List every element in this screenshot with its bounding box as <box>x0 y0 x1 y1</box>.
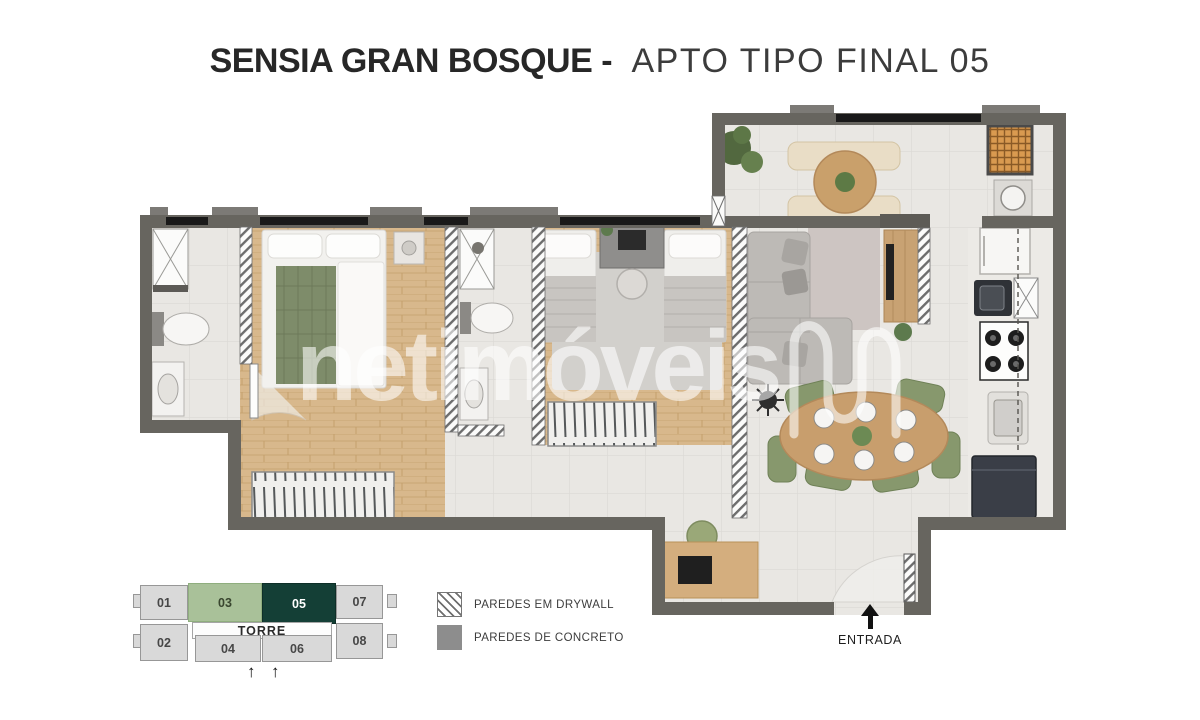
plate <box>896 410 916 430</box>
legend-item-concrete: PAREDES DE CONCRETO <box>437 625 624 650</box>
pillow <box>326 234 380 258</box>
living-rug <box>808 228 880 330</box>
sofa-pillow <box>781 238 809 266</box>
lamp <box>402 241 416 255</box>
monitor <box>618 230 646 250</box>
keyplan-unit-02: 02 <box>140 624 188 661</box>
master-wardrobe <box>252 472 394 518</box>
keyplan-unit-03: 03 <box>188 583 262 622</box>
plate <box>856 402 876 422</box>
toilet1 <box>163 313 209 345</box>
keyplan-unit-01: 01 <box>140 585 188 620</box>
master-door <box>250 364 258 418</box>
entrance-marker: ENTRADA <box>830 604 910 647</box>
tower-key-plan: 01 03 05 07 TORRE 02 04 06 08 ↑ ↑ <box>137 578 397 682</box>
laptop <box>678 556 712 584</box>
keyplan-unit-08: 08 <box>336 623 383 659</box>
legend: PAREDES EM DRYWALL PAREDES DE CONCRETO <box>437 592 624 658</box>
bbq-grill <box>988 126 1032 174</box>
terrace-sink <box>1001 186 1025 210</box>
plant <box>894 323 912 341</box>
desk-chair <box>617 269 647 299</box>
plate <box>894 442 914 462</box>
keyplan-arrow-icon: ↑ <box>271 662 280 682</box>
table-plant <box>835 172 855 192</box>
concrete-solid-swatch-icon <box>437 625 462 650</box>
legend-label: PAREDES DE CONCRETO <box>474 632 624 644</box>
keyplan-unit-07: 07 <box>336 585 383 619</box>
legend-item-drywall: PAREDES EM DRYWALL <box>437 592 624 617</box>
unit-label: 08 <box>353 634 367 648</box>
sofa-pillow <box>781 268 809 296</box>
plate <box>854 450 874 470</box>
keyplan-notch <box>387 594 397 608</box>
washing-machine <box>972 456 1036 518</box>
keyplan-notch <box>387 634 397 648</box>
toilet1-tank <box>152 312 164 346</box>
unit-label: 05 <box>292 597 306 611</box>
floorplan-page: SENSIA GRAN BOSQUE - APTO TIPO FINAL 05 <box>0 0 1200 720</box>
arrow-stem <box>868 614 873 629</box>
drywall-hatch-swatch-icon <box>437 592 462 617</box>
entrance-label: ENTRADA <box>830 633 910 647</box>
fridge <box>980 228 1030 274</box>
keyplan-unit-04: 04 <box>195 635 261 662</box>
unit-label: 03 <box>218 596 232 610</box>
keyplan-unit-05: 05 <box>262 583 336 624</box>
toilet2 <box>471 303 513 333</box>
plaid-throw <box>276 266 336 384</box>
plate <box>814 444 834 464</box>
cooktop <box>980 322 1028 380</box>
keyplan-arrow-icon: ↑ <box>247 662 256 682</box>
tv <box>886 244 894 300</box>
keyplan-unit-06: 06 <box>262 635 332 662</box>
pillow <box>268 234 322 258</box>
unit-label: 04 <box>221 642 235 656</box>
legend-label: PAREDES EM DRYWALL <box>474 599 614 611</box>
bedroom2-wardrobe <box>548 402 656 446</box>
unit-label: 01 <box>157 596 171 610</box>
plate <box>814 408 834 428</box>
unit-label: 07 <box>353 595 367 609</box>
sofa-pillow <box>781 340 808 367</box>
unit-label: 02 <box>157 636 171 650</box>
unit-label: 06 <box>290 642 304 656</box>
entrance-arrow-icon <box>860 604 880 630</box>
centerpiece <box>852 426 872 446</box>
kitchen <box>968 184 1054 518</box>
entry-door <box>904 554 915 602</box>
